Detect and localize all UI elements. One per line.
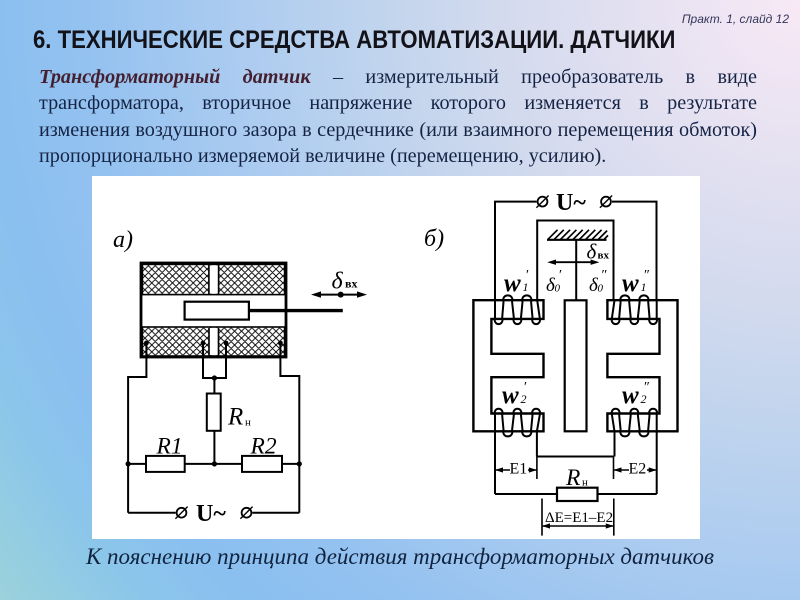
svg-text:U~: U~ [196, 501, 226, 527]
svg-text:0: 0 [598, 283, 604, 295]
svg-text:E1: E1 [510, 461, 528, 478]
svg-text:R2: R2 [250, 434, 277, 460]
svg-text:w: w [622, 270, 639, 297]
svg-text:б): б) [424, 226, 444, 252]
svg-text:R: R [565, 465, 580, 491]
svg-text:w: w [622, 382, 639, 409]
svg-text:″: ″ [602, 268, 608, 283]
svg-text:δ: δ [587, 240, 598, 264]
svg-text:ΔE=E1–E2: ΔE=E1–E2 [545, 510, 613, 526]
svg-text:вх: вх [345, 277, 357, 291]
svg-text:w: w [502, 382, 519, 409]
svg-text:w: w [504, 270, 521, 297]
svg-text:U~: U~ [556, 190, 586, 216]
svg-text:а): а) [113, 227, 133, 253]
svg-text:R1: R1 [156, 434, 183, 460]
svg-text:н: н [245, 417, 251, 429]
svg-text:″: ″ [644, 380, 650, 395]
svg-text:″: ″ [644, 268, 650, 283]
svg-text:н: н [582, 477, 588, 489]
svg-text:′: ′ [526, 268, 529, 283]
svg-text:δ: δ [332, 269, 344, 295]
svg-text:R: R [227, 404, 243, 431]
svg-text:E2: E2 [629, 461, 647, 478]
svg-text:′: ′ [559, 268, 562, 283]
svg-text:′: ′ [524, 380, 527, 395]
svg-text:0: 0 [555, 283, 561, 295]
svg-text:вх: вх [598, 250, 610, 262]
